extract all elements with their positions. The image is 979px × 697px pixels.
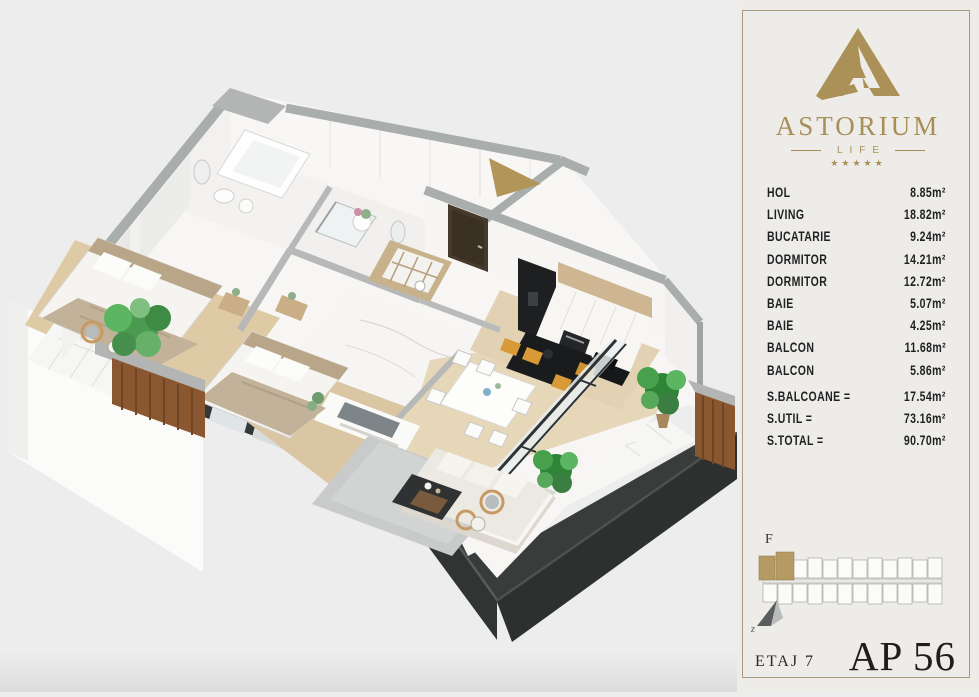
room-label: DORMITOR [767,253,827,267]
room-area: 12.72m² [904,275,946,289]
room-label: BALCON [767,364,814,378]
total-label: S.UTIL = [767,412,812,426]
legend-row: BALCON 11.68m² [767,341,946,355]
room-label: HOL [767,186,790,200]
legend-row: BAIE 5.07m² [767,297,946,311]
total-row: S.UTIL = 73.16m² [767,412,946,426]
brand-subtitle: LIFE [830,145,886,156]
legend-row: BUCATARIE 9.24m² [767,230,946,244]
room-label: BAIE [767,319,794,333]
room-area: 18.82m² [904,208,946,222]
total-label: S.BALCOANE = [767,390,850,404]
room-area: 5.07m² [910,297,946,311]
legend-row: BAIE 4.25m² [767,319,946,333]
floorplan-render [0,0,740,692]
room-label: BALCON [767,341,814,355]
total-value: 73.16m² [904,412,946,426]
legend-row: BALCON 5.86m² [767,364,946,378]
logo-triangle-icon [810,26,906,102]
total-value: 17.54m² [904,390,946,404]
apartment-number: AP 56 [849,632,956,680]
room-label: DORMITOR [767,275,827,289]
room-area: 5.86m² [910,364,946,378]
highlighted-unit [759,552,794,580]
room-area: 14.21m² [904,253,946,267]
brand-logo: ASTORIUM LIFE ★★★★★ [737,26,979,169]
brochure-page: { "brand": { "name": "ASTORIUM", "subtit… [0,0,979,692]
room-area: 4.25m² [910,319,946,333]
total-row: S.TOTAL = 90.70m² [767,434,946,448]
room-legend: HOL 8.85m² LIVING 18.82m² BUCATARIE 9.24… [767,186,946,386]
total-value: 90.70m² [904,434,946,448]
room-label: LIVING [767,208,804,222]
info-panel: ASTORIUM LIFE ★★★★★ HOL 8.85m² LIVING 18… [737,0,979,692]
room-area: 11.68m² [905,341,946,355]
room-label: BAIE [767,297,794,311]
legend-row: HOL 8.85m² [767,186,946,200]
compass-letter: z [750,624,755,635]
room-label: BUCATARIE [767,230,831,244]
room-area: 8.85m² [910,186,946,200]
north-arrow-icon: z [745,592,791,636]
floorplan-svg [0,0,740,692]
brand-subtitle-row: LIFE [737,145,979,156]
totals-block: S.BALCOANE = 17.54m² S.UTIL = 73.16m² S.… [767,390,946,456]
brand-name: ASTORIUM [737,111,979,142]
five-stars: ★★★★★ [737,158,979,169]
room-area: 9.24m² [910,230,946,244]
legend-row: LIVING 18.82m² [767,208,946,222]
legend-row: DORMITOR 12.72m² [767,275,946,289]
total-label: S.TOTAL = [767,434,823,448]
total-row: S.BALCOANE = 17.54m² [767,390,946,404]
rule-left [791,150,821,151]
block-label: F [765,532,773,548]
rule-right [895,150,925,151]
floor-label: ETAJ 7 [755,653,815,671]
legend-row: DORMITOR 14.21m² [767,253,946,267]
